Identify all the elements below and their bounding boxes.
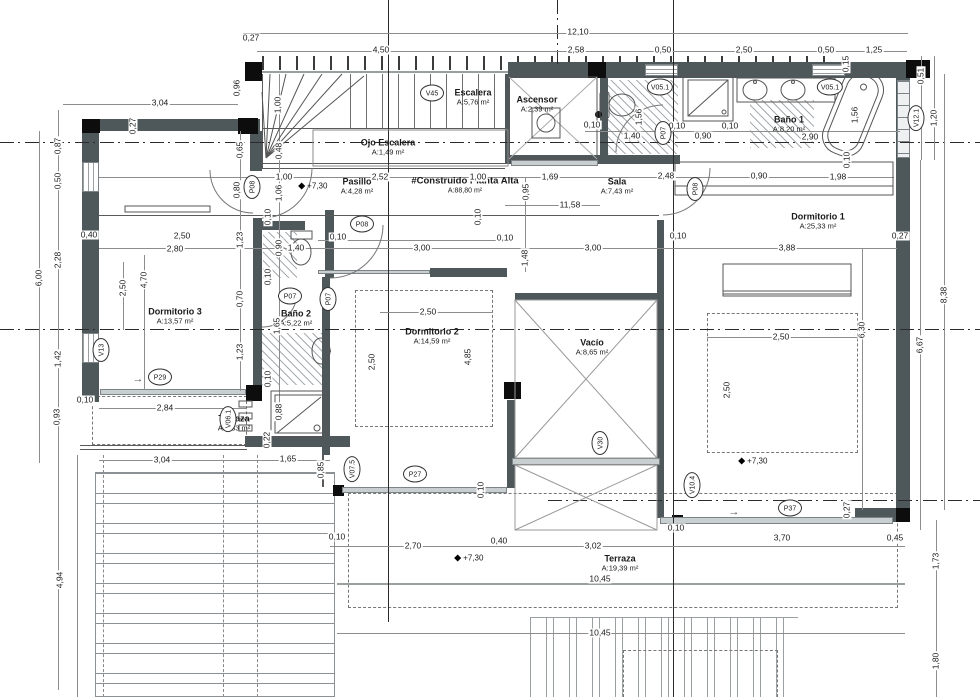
dimension-label: 0,40 (490, 537, 509, 546)
drawing-element (314, 425, 320, 431)
dimension-label: 3,02 (584, 542, 603, 551)
dimension-label: 0,96 (233, 79, 242, 98)
tag-p27: P27 (403, 466, 427, 483)
dimension-label: 0,10 (264, 370, 273, 389)
room-label: PasilloA:4,28 m² (341, 177, 374, 196)
drawing-element (239, 401, 252, 407)
dimension-label: 3,00 (413, 244, 432, 253)
dimension-label: 1,40 (287, 244, 306, 253)
direction-arrow-icon: → (133, 373, 144, 385)
tag-v30: V30 (592, 431, 609, 455)
dimension-label: 0,80 (233, 181, 242, 200)
dimension-label: 0,10 (474, 208, 483, 227)
room-name: Ascensor (516, 95, 557, 105)
room-label: VacíoA:8,65 m² (576, 338, 609, 357)
tag-p07: P07 (320, 287, 337, 311)
dimension-label: 3,70 (773, 534, 792, 543)
dimension-label: 0,10 (583, 121, 602, 130)
dimension-label: 0,27 (129, 117, 138, 136)
dimension-label: 2,50 (723, 381, 732, 400)
room-name: Pasillo (341, 177, 374, 187)
room-label: SalaA:7,43 m² (601, 177, 634, 196)
room-label: TerrazaA:19,39 m² (602, 554, 639, 573)
tag-p37: P37 (778, 500, 802, 517)
tag-p29: P29 (148, 369, 172, 386)
room-area: A:4,28 m² (341, 187, 374, 196)
dimension-label: 0,10 (328, 533, 347, 542)
dimension-label: 1,40 (623, 132, 642, 141)
dimension-label: 0,10 (76, 396, 95, 405)
dimension-label: 2,48 (657, 172, 676, 181)
dimension-label: 0,51 (917, 67, 926, 86)
dimension-label: 1,00 (275, 173, 294, 182)
dimension-label: 0,88 (275, 403, 284, 422)
dimension-label: 0,90 (694, 132, 713, 141)
toilet-bath1 (600, 92, 609, 118)
dimension-label: 0,10 (667, 524, 686, 533)
dimension-label: 2,80 (166, 245, 185, 254)
level-marker: +7,30 (299, 182, 327, 191)
dimension-label: 12,10 (566, 28, 589, 37)
room-name: Escalera (454, 88, 491, 98)
level-value: +7,30 (463, 554, 483, 563)
dimension-label: 0,70 (236, 290, 245, 309)
dimension-label: 0,95 (522, 183, 531, 202)
tag-v051: V05.1 (647, 79, 673, 96)
dimension-label: 1,80 (932, 652, 941, 671)
tag-p08: P08 (244, 175, 261, 199)
room-name: Terraza (602, 554, 639, 564)
dimension-label: 4,70 (140, 271, 149, 290)
drawing-element (515, 300, 657, 530)
dimension-label: 2,58 (567, 46, 586, 55)
dimension-label: 1,56 (635, 108, 644, 127)
level-diamond-icon (738, 457, 745, 464)
dimension-label: 2,50 (735, 46, 754, 55)
dimension-label: 4,50 (372, 46, 391, 55)
room-label: EscaleraA:5,76 m² (454, 88, 491, 107)
room-label: Dormitorio 1A:25,33 m² (791, 212, 845, 231)
dimension-label: 0,65 (236, 141, 245, 160)
tag-p07: P07 (278, 288, 302, 305)
room-area: A:88,80 m² (411, 187, 518, 196)
drawing-element (515, 465, 657, 530)
room-name: Baño 1 (773, 115, 806, 125)
tag-v104: V10.4 (684, 472, 701, 498)
dimension-label: 1,65 (279, 455, 298, 464)
tag-v051: V05.1 (817, 79, 843, 96)
dimension-label: 3,88 (778, 244, 797, 253)
drawing-element (723, 291, 851, 294)
shelf-dorm3 (125, 206, 210, 212)
room-name: Baño 2 (280, 309, 313, 319)
room-area: A:5,76 m² (454, 98, 491, 107)
dimension-label: 2,52 (371, 173, 390, 182)
tag-p08: P08 (687, 177, 704, 201)
dimension-label: 1,00 (274, 96, 283, 115)
tag-v121: V12.1 (908, 105, 925, 131)
level-marker: +7,30 (739, 457, 767, 466)
dimension-label: 0,90 (275, 239, 284, 258)
dimension-label: 1,69 (541, 173, 560, 182)
dimension-label: 0,50 (54, 172, 63, 191)
drawing-element (515, 300, 657, 458)
room-name: Sala (601, 177, 634, 187)
dimension-label: 1,56 (851, 106, 860, 125)
tag-p08: P08 (350, 216, 374, 233)
drawing-element (609, 94, 635, 116)
room-area: A:8,65 m² (576, 348, 609, 357)
dimension-label: 6,67 (916, 336, 925, 355)
dimension-label: 0,10 (329, 233, 348, 242)
room-label: Baño 1A:8,20 m² (773, 115, 806, 134)
dimension-label: 2,50 (419, 308, 438, 317)
dimension-label: 2,50 (772, 333, 791, 342)
dimension-label: 1,06 (275, 184, 284, 203)
room-name: Vacío (576, 338, 609, 348)
dimension-label: 0,90 (750, 172, 769, 181)
dimension-label: 1,23 (236, 231, 245, 250)
dimension-label: 11,58 (559, 201, 582, 210)
dimension-label: 2,50 (173, 232, 192, 241)
room-name: Dormitorio 3 (148, 307, 202, 317)
dimension-label: 0,50 (817, 46, 836, 55)
dimension-label: 1,00 (469, 173, 488, 182)
tag-v075: V07.5 (344, 456, 361, 482)
floor-plan: 0,2712,104,502,580,502,500,501,253,040,9… (0, 0, 980, 697)
dimension-label: 3,04 (153, 456, 172, 465)
room-name: Ojo Escalera (361, 138, 416, 148)
closet-dorm1 (675, 162, 893, 195)
room-area: A:5,22 m² (280, 319, 313, 328)
dimension-label: 0,10 (669, 232, 688, 241)
drawing-element (537, 114, 555, 132)
dimension-label: 3,04 (151, 99, 170, 108)
dimension-label: 0,50 (654, 46, 673, 55)
room-area: A:14,59 m² (405, 337, 459, 346)
level-value: +7,30 (307, 182, 327, 191)
room-label: Dormitorio 3A:13,57 m² (148, 307, 202, 326)
direction-arrow-icon: → (729, 506, 740, 518)
room-label: Dormitorio 2A:14,59 m² (405, 327, 459, 346)
dimension-label: 1,42 (54, 350, 63, 369)
dimension-label: 0,93 (53, 408, 62, 427)
dimension-label: 0,22 (263, 431, 272, 450)
level-marker: +7,30 (455, 554, 483, 563)
toilet-bath2 (291, 231, 312, 239)
dimension-label: 2,84 (156, 404, 175, 413)
dimension-label: 2,28 (54, 251, 63, 270)
dimension-label: 0,10 (477, 481, 486, 500)
dimension-label: 0,15 (842, 55, 851, 74)
room-label: Ojo EscaleraA:1,49 m² (361, 138, 416, 157)
dimension-label: 2,70 (404, 542, 423, 551)
dimension-label: 1,73 (932, 552, 941, 571)
dimension-label: 10,45 (588, 629, 611, 638)
dimension-label: 0,10 (264, 208, 273, 227)
dimension-label: 0,87 (54, 137, 63, 156)
tag-v45: V45 (420, 85, 444, 102)
tag-p07: P07 (655, 121, 672, 145)
room-area: A:19,39 m² (602, 564, 639, 573)
dimension-label: 1,23 (236, 343, 245, 362)
dimension-label: 0,10 (496, 234, 515, 243)
dimension-label: 4,94 (56, 571, 65, 590)
dimension-label: 0,85 (317, 461, 326, 480)
room-label: #Construido Planta AltaA:88,80 m² (411, 177, 518, 196)
room-area: A:7,43 m² (601, 187, 634, 196)
dimension-label: 6,00 (35, 269, 44, 288)
dimension-label: 0,48 (275, 142, 284, 161)
room-area: A:25,33 m² (791, 222, 845, 231)
room-name: Dormitorio 1 (791, 212, 845, 222)
dimension-label: 0,10 (721, 122, 740, 131)
dimension-label: 0,27 (242, 34, 261, 43)
drawing-element (754, 81, 757, 84)
room-label: Baño 2A:5,22 m² (280, 309, 313, 328)
drawing-element (328, 350, 331, 353)
dimension-label: 0,27 (843, 501, 852, 520)
dimension-label: 2,90 (801, 133, 820, 142)
dimension-label: 1,48 (521, 249, 530, 268)
drawing-element (860, 83, 868, 91)
dimension-label: 2,50 (368, 353, 377, 372)
dimension-label: 0,10 (264, 268, 273, 287)
room-label: AscensorA:2,39 m² (516, 95, 557, 114)
room-area: A:2,39 m² (516, 105, 557, 114)
dimension-label: 0,27 (891, 232, 910, 241)
dimension-label: 0,10 (843, 151, 852, 170)
dimension-label: 1,65 (273, 317, 282, 336)
dimension-label: 4,85 (464, 348, 473, 367)
dimension-label: 6,30 (858, 321, 867, 340)
dimension-label: 3,00 (584, 244, 603, 253)
dimension-label: 10,45 (588, 575, 611, 584)
drawing-element (722, 110, 726, 114)
drawing-element (792, 81, 795, 84)
dimension-label: 1,98 (829, 173, 848, 182)
room-name: Dormitorio 2 (405, 327, 459, 337)
tag-v13: V13 (93, 338, 110, 362)
room-area: A:13,57 m² (148, 317, 202, 326)
level-diamond-icon (454, 554, 461, 561)
dimension-label: 1,25 (865, 46, 884, 55)
dimension-label: 1,20 (930, 109, 939, 128)
dimension-label: 2,50 (119, 279, 128, 298)
level-value: +7,30 (747, 457, 767, 466)
room-area: A:1,49 m² (361, 148, 416, 157)
dimension-label: 8,38 (940, 286, 949, 305)
level-diamond-icon (298, 182, 305, 189)
room-name: #Construido Planta Alta (411, 177, 518, 187)
dimension-label: 0,45 (886, 534, 905, 543)
dimension-label: 0,40 (80, 231, 99, 240)
tag-v061: V06.1 (220, 406, 237, 432)
